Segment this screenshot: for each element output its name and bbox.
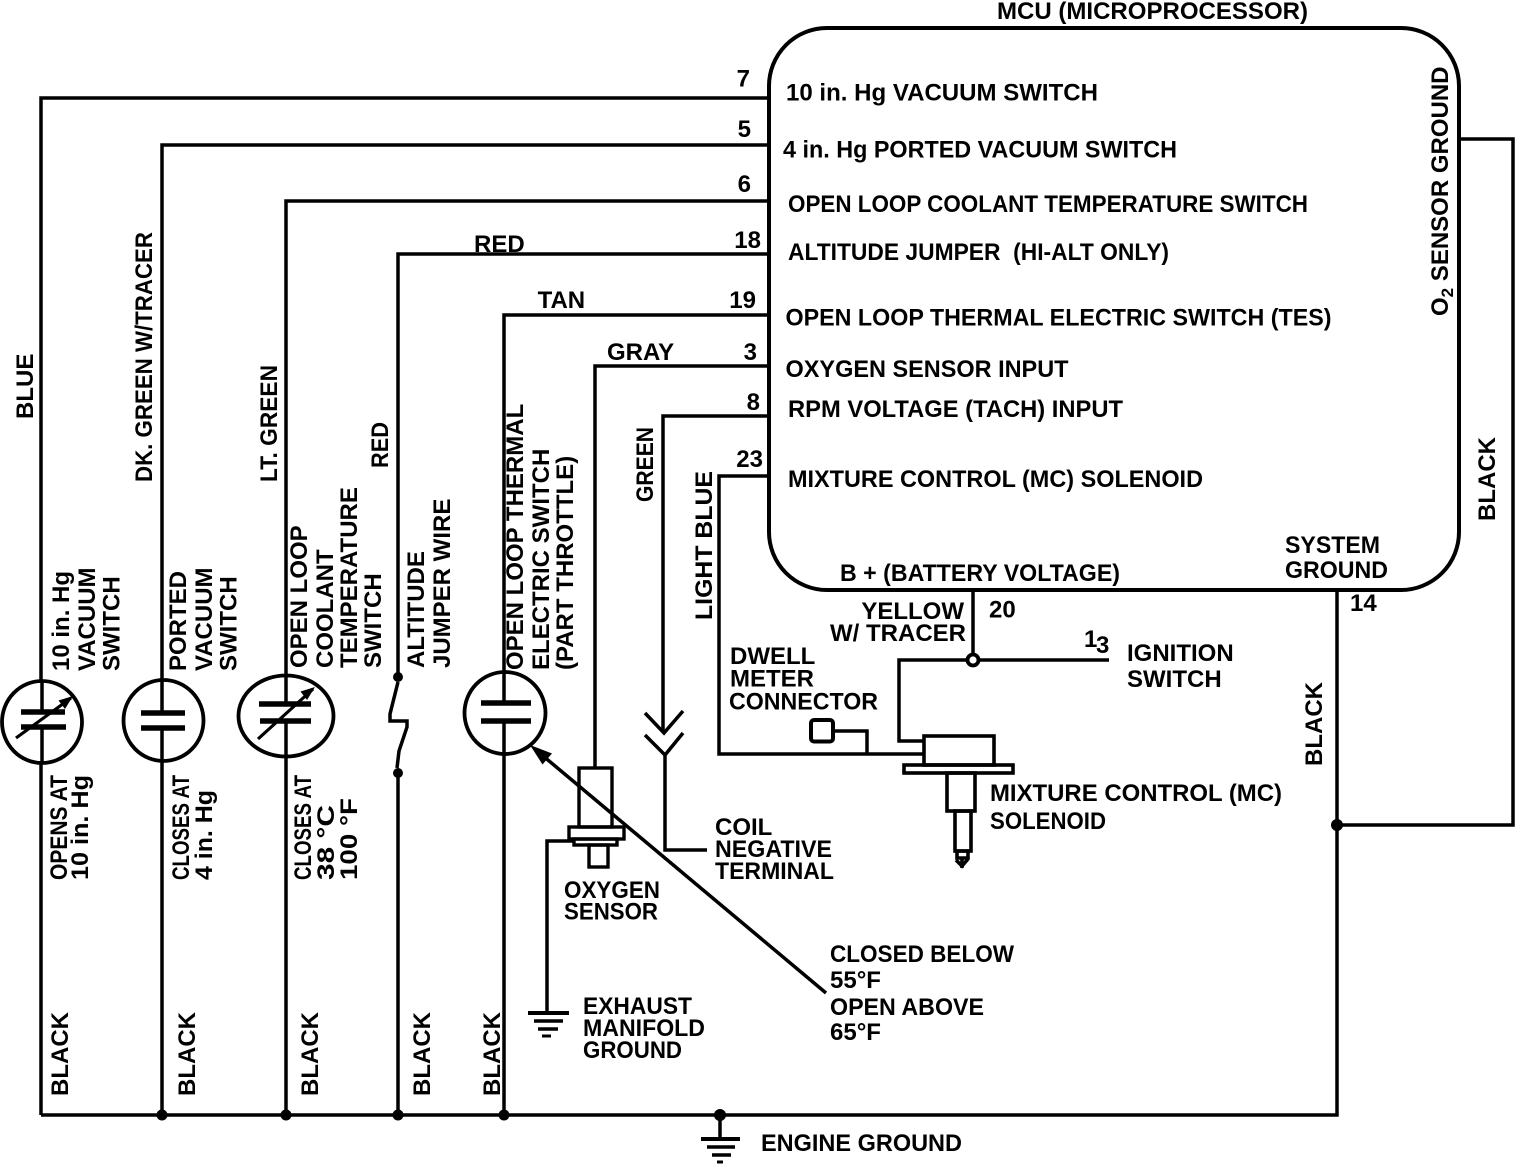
svg-text:3: 3 — [744, 339, 757, 366]
svg-text:65°F: 65°F — [830, 1019, 881, 1046]
svg-text:7: 7 — [737, 66, 750, 93]
svg-text:5: 5 — [738, 116, 751, 143]
svg-text:18: 18 — [734, 227, 761, 254]
svg-text:SYSTEM: SYSTEM — [1285, 532, 1380, 559]
svg-text:ENGINE GROUND: ENGINE GROUND — [761, 1130, 962, 1157]
svg-text:10 in. Hg VACUUM SWITCH: 10 in. Hg VACUUM SWITCH — [786, 80, 1098, 107]
svg-text:14: 14 — [1350, 590, 1377, 617]
svg-text:RPM VOLTAGE (TACH) INPUT: RPM VOLTAGE (TACH) INPUT — [788, 396, 1123, 423]
svg-text:ALTITUDE JUMPER (HI-ALT ONLY): ALTITUDE JUMPER (HI-ALT ONLY) — [788, 239, 1169, 266]
svg-text:SWITCH: SWITCH — [216, 576, 243, 671]
svg-text:10 in. Hg: 10 in. Hg — [67, 775, 94, 880]
svg-text:LIGHT BLUE: LIGHT BLUE — [691, 471, 718, 620]
svg-text:VACUUM: VACUUM — [191, 567, 218, 671]
svg-text:OXYGEN SENSOR INPUT: OXYGEN SENSOR INPUT — [786, 356, 1069, 383]
svg-text:BLACK: BLACK — [1474, 436, 1501, 521]
svg-text:23: 23 — [736, 446, 763, 473]
svg-text:BLACK: BLACK — [47, 1011, 74, 1096]
svg-text:20: 20 — [989, 597, 1016, 624]
svg-text:PORTED: PORTED — [165, 571, 192, 671]
svg-text:(PART THROTTLE): (PART THROTTLE) — [552, 456, 579, 670]
svg-text:8: 8 — [747, 389, 760, 416]
svg-text:BLACK: BLACK — [297, 1011, 324, 1096]
svg-text:6: 6 — [738, 171, 751, 198]
svg-text:TERMINAL: TERMINAL — [715, 858, 834, 885]
svg-text:DK. GREEN W/TRACER: DK. GREEN W/TRACER — [131, 232, 158, 482]
svg-text:VACUUM: VACUUM — [74, 567, 101, 671]
svg-text:BLACK: BLACK — [479, 1011, 506, 1096]
svg-text:COOLANT: COOLANT — [312, 549, 339, 668]
svg-text:ALTITUDE: ALTITUDE — [403, 551, 430, 668]
svg-text:4 in. Hg PORTED VACUUM SWITCH: 4 in. Hg PORTED VACUUM SWITCH — [783, 137, 1177, 164]
svg-text:4 in. Hg: 4 in. Hg — [191, 790, 218, 880]
svg-text:BLACK: BLACK — [1301, 681, 1328, 766]
svg-text:GREEN: GREEN — [632, 427, 659, 502]
svg-text:CLOSED BELOW: CLOSED BELOW — [830, 941, 1014, 968]
svg-text:CONNECTOR: CONNECTOR — [729, 689, 878, 716]
svg-text:ELECTRIC SWITCH: ELECTRIC SWITCH — [528, 449, 555, 670]
svg-text:BLUE: BLUE — [12, 354, 39, 419]
svg-text:BLACK: BLACK — [174, 1011, 201, 1096]
svg-text:OPEN LOOP COOLANT TEMPERATURE: OPEN LOOP COOLANT TEMPERATURE SWITCH — [788, 191, 1308, 218]
svg-text:MIXTURE CONTROL (MC): MIXTURE CONTROL (MC) — [990, 780, 1282, 807]
svg-text:GRAY: GRAY — [607, 339, 674, 366]
svg-text:W/ TRACER: W/ TRACER — [830, 620, 966, 647]
svg-text:JUMPER WIRE: JUMPER WIRE — [429, 499, 456, 668]
svg-text:TEMPERATURE: TEMPERATURE — [336, 487, 363, 668]
svg-text:19: 19 — [729, 287, 756, 314]
svg-text:GROUND: GROUND — [583, 1037, 682, 1064]
svg-text:SWITCH: SWITCH — [99, 576, 126, 671]
svg-text:GROUND: GROUND — [1285, 557, 1388, 584]
svg-text:LT. GREEN: LT. GREEN — [256, 365, 283, 482]
svg-text:SWITCH: SWITCH — [360, 573, 387, 668]
svg-text:BLACK: BLACK — [409, 1011, 436, 1096]
svg-text:OPEN LOOP THERMAL ELECTRIC SWI: OPEN LOOP THERMAL ELECTRIC SWITCH (TES) — [786, 305, 1332, 332]
svg-text:MIXTURE CONTROL (MC) SOLENOID: MIXTURE CONTROL (MC) SOLENOID — [788, 466, 1203, 493]
svg-text:OPEN LOOP THERMAL: OPEN LOOP THERMAL — [502, 404, 529, 670]
svg-text:55°F: 55°F — [830, 967, 881, 994]
svg-text:O2 SENSOR GROUND: O2 SENSOR GROUND — [1427, 67, 1457, 317]
svg-text:RED: RED — [474, 231, 525, 258]
svg-text:B + (BATTERY VOLTAGE): B + (BATTERY VOLTAGE) — [840, 560, 1120, 587]
svg-text:10 in. Hg: 10 in. Hg — [48, 571, 75, 671]
svg-text:IGNITION: IGNITION — [1127, 640, 1234, 667]
svg-text:3: 3 — [1096, 632, 1109, 659]
svg-text:SWITCH: SWITCH — [1127, 666, 1222, 693]
svg-text:OPEN ABOVE: OPEN ABOVE — [830, 994, 984, 1021]
svg-text:RED: RED — [367, 422, 394, 468]
svg-text:SOLENOID: SOLENOID — [990, 808, 1106, 835]
svg-text:100 °F: 100 °F — [336, 798, 363, 880]
svg-text:MCU (MICROPROCESSOR): MCU (MICROPROCESSOR) — [997, 0, 1308, 25]
svg-text:TAN: TAN — [538, 287, 586, 314]
svg-text:SENSOR: SENSOR — [564, 899, 658, 926]
svg-text:OPEN LOOP: OPEN LOOP — [286, 525, 313, 668]
